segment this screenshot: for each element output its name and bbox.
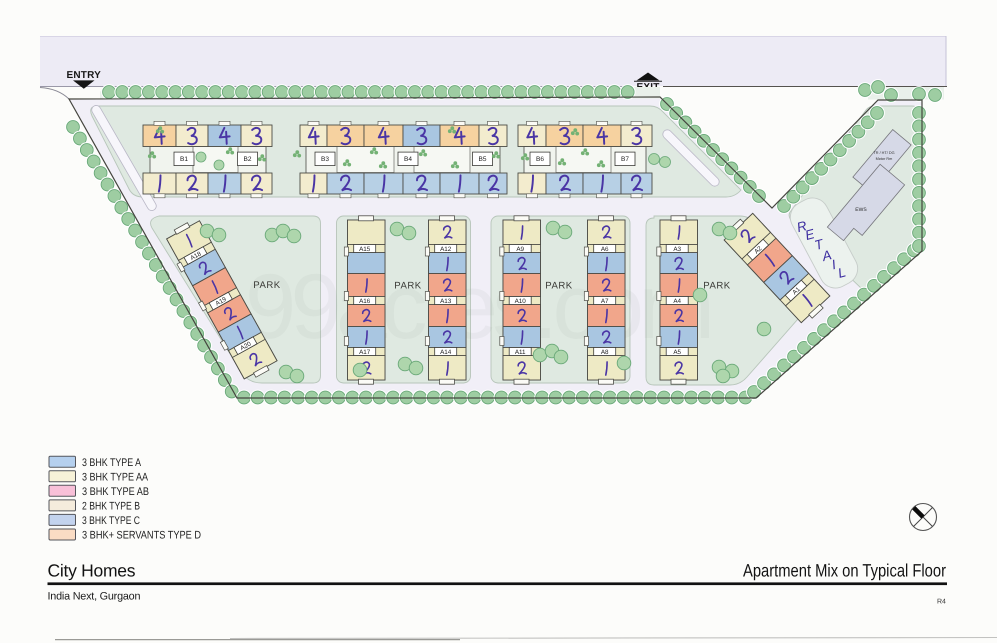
svg-text:A7: A7 — [601, 298, 609, 305]
svg-text:3 BHK TYPE AB: 3 BHK TYPE AB — [82, 486, 149, 498]
svg-text:3 BHK+ SERVANTS TYPE D: 3 BHK+ SERVANTS TYPE D — [82, 530, 201, 542]
svg-text:B2: B2 — [244, 156, 252, 163]
svg-text:3 BHK TYPE C: 3 BHK TYPE C — [82, 515, 140, 527]
svg-text:PARK: PARK — [545, 281, 573, 292]
svg-text:R4: R4 — [937, 599, 946, 606]
svg-text:A11: A11 — [515, 349, 526, 356]
svg-text:A5: A5 — [673, 349, 681, 356]
svg-text:B1: B1 — [180, 156, 188, 163]
svg-text:A9: A9 — [516, 246, 524, 253]
svg-text:A15: A15 — [359, 246, 371, 253]
svg-text:B3: B3 — [321, 156, 329, 163]
svg-text:A4: A4 — [673, 298, 681, 305]
svg-text:Apartment Mix on Typical Floor: Apartment Mix on Typical Floor — [743, 561, 946, 581]
svg-text:ENTRY: ENTRY — [67, 70, 102, 81]
svg-text:Meter Rm: Meter Rm — [876, 157, 893, 161]
svg-text:India Next, Gurgaon: India Next, Gurgaon — [48, 591, 141, 603]
svg-text:PARK: PARK — [703, 281, 731, 292]
svg-text:A14: A14 — [440, 349, 452, 356]
svg-text:A8: A8 — [601, 349, 609, 356]
svg-text:B6: B6 — [536, 156, 544, 163]
svg-text:3 BHK TYPE A: 3 BHK TYPE A — [82, 457, 142, 469]
svg-text:PARK: PARK — [253, 280, 281, 291]
svg-text:A17: A17 — [359, 349, 371, 356]
svg-text:EWS: EWS — [855, 207, 867, 213]
svg-text:A13: A13 — [440, 298, 452, 305]
svg-text:City Homes: City Homes — [48, 561, 136, 581]
svg-text:3 BHK TYPE AA: 3 BHK TYPE AA — [82, 471, 149, 483]
svg-text:A12: A12 — [440, 246, 452, 253]
svg-text:A10: A10 — [515, 298, 527, 305]
svg-text:PARK: PARK — [394, 281, 422, 292]
svg-text:TR / HT/ DG: TR / HT/ DG — [873, 151, 894, 155]
svg-text:2 BHK TYPE B: 2 BHK TYPE B — [82, 501, 140, 513]
svg-text:A16: A16 — [359, 298, 371, 305]
svg-text:A3: A3 — [673, 246, 681, 253]
svg-text:99acres.com: 99acres.com — [245, 256, 715, 358]
svg-text:B7: B7 — [621, 156, 629, 163]
svg-text:B5: B5 — [479, 156, 487, 163]
svg-text:B4: B4 — [404, 156, 412, 163]
svg-text:A6: A6 — [601, 246, 609, 253]
